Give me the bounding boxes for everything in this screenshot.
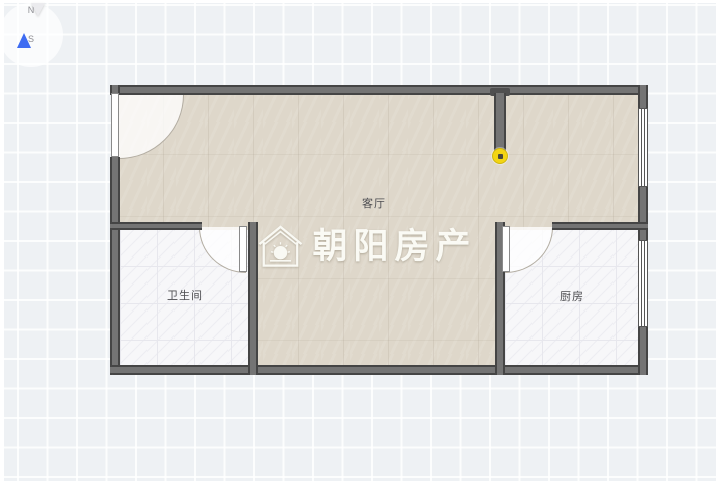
kitchen-door-leaf[interactable] [502,226,510,272]
window-pane-line [641,109,642,186]
bathroom-label: 卫生间 [167,287,203,303]
wall-endpoint-handle[interactable] [492,148,508,164]
entry-door-leaf[interactable] [111,93,119,157]
wall-left-lower[interactable] [110,157,120,375]
window-pane-line [644,241,645,326]
compass: N S [13,5,49,45]
wall-bathroom-right[interactable] [248,222,258,375]
kitchen-label: 厨房 [560,288,584,304]
wall-bottom[interactable] [110,365,648,375]
window-right-upper[interactable] [638,108,648,187]
window-right-kitchen[interactable] [638,240,648,327]
wall-right-upper[interactable] [638,85,648,108]
wall-kitchen-top[interactable] [552,222,648,230]
wall-right-lower[interactable] [638,327,648,375]
floorplan-app: N S [0,0,720,491]
wall-top[interactable] [110,85,648,95]
wall-right-middle[interactable] [638,187,648,240]
window-pane-line [644,109,645,186]
compass-south-needle-icon [31,3,45,33]
floorplan: 朝阳房产 [0,0,720,491]
wall-bathroom-top[interactable] [110,222,202,230]
compass-south-label: S [13,34,49,45]
window-pane-line [641,241,642,326]
floorplan-canvas[interactable]: N S [4,3,716,481]
living-room-label: 客厅 [362,195,386,211]
wall-stub-selected[interactable] [494,93,506,153]
bathroom-door-leaf[interactable] [239,226,247,272]
